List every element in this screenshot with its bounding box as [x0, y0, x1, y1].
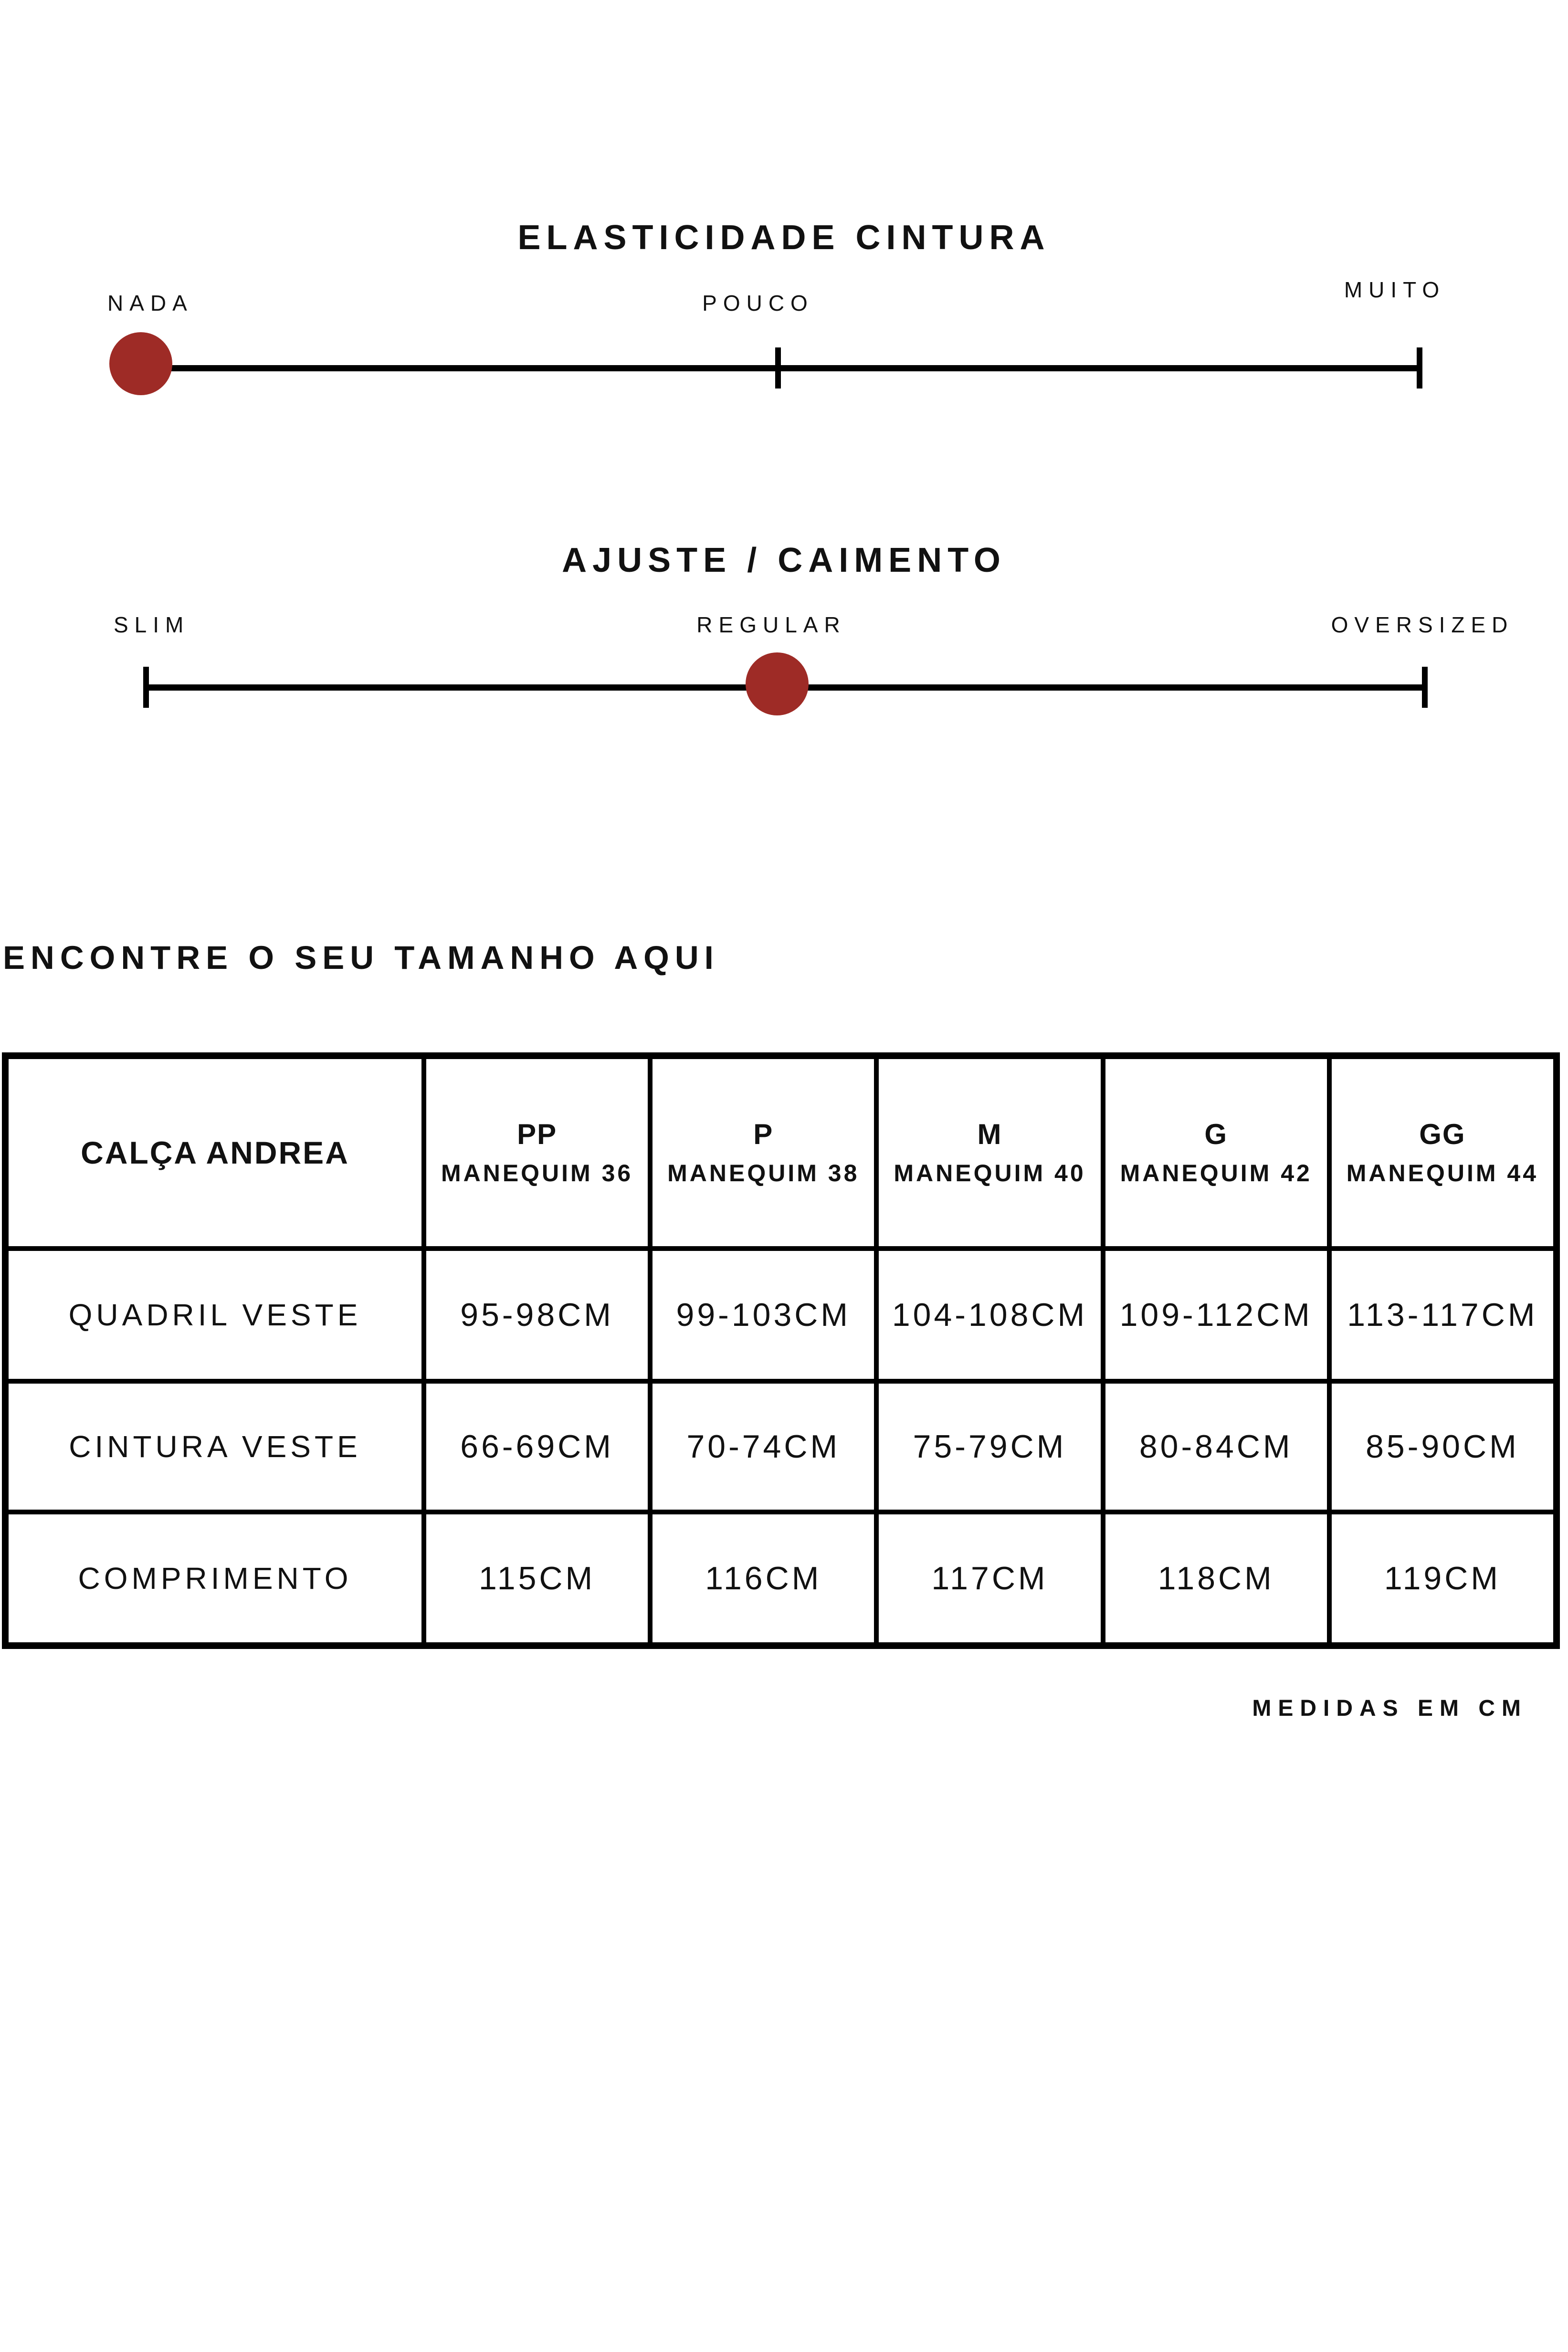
measurement-value: 104-108CM: [892, 1299, 1087, 1331]
slider-label-pouco: POUCO: [663, 292, 853, 314]
row-label-cell: COMPRIMENTO: [9, 1514, 421, 1642]
table-cell: 95-98CM: [426, 1251, 648, 1379]
table-cell: 75-79CM: [879, 1384, 1100, 1510]
size-code: P: [753, 1120, 773, 1149]
measurement-value: 117CM: [931, 1562, 1048, 1595]
measurement-value: 66-69CM: [460, 1430, 614, 1463]
measurement-value: 70-74CM: [686, 1430, 840, 1463]
table-cell: 117CM: [879, 1514, 1100, 1642]
table-cell: 115CM: [426, 1514, 648, 1642]
measurement-value: 85-90CM: [1366, 1430, 1519, 1463]
slider-dot-indicator: [746, 652, 809, 715]
size-column-header-p: P MANEQUIM 38: [652, 1059, 874, 1246]
table-cell: 70-74CM: [652, 1384, 874, 1510]
table-cell: 118CM: [1105, 1514, 1327, 1642]
mannequin-label: MANEQUIM 38: [667, 1161, 859, 1185]
measurement-value: 95-98CM: [460, 1299, 614, 1331]
measurement-value: 113-117CM: [1347, 1299, 1537, 1331]
size-column-header-pp: PP MANEQUIM 36: [426, 1059, 648, 1246]
slider-title: AJUSTE / CAIMENTO: [0, 543, 1568, 577]
mannequin-label: MANEQUIM 36: [441, 1161, 633, 1185]
measurement-value: 118CM: [1158, 1562, 1274, 1595]
row-label-cell: QUADRIL VESTE: [9, 1251, 421, 1379]
slider-title: ELASTICIDADE CINTURA: [0, 220, 1568, 255]
size-table: CALÇA ANDREA PP MANEQUIM 36 P MANEQUIM 3…: [2, 1052, 1560, 1649]
measurement-value: 115CM: [479, 1562, 595, 1595]
table-cell: 80-84CM: [1105, 1384, 1327, 1510]
table-cell: 113-117CM: [1332, 1251, 1553, 1379]
size-code: G: [1204, 1120, 1228, 1149]
slider-tick-start: [143, 667, 149, 708]
table-cell: 99-103CM: [652, 1251, 874, 1379]
size-guide-heading: ENCONTRE O SEU TAMANHO AQUI: [3, 941, 719, 974]
measurement-value: 116CM: [705, 1562, 821, 1595]
measurement-value: 119CM: [1384, 1562, 1501, 1595]
measurement-value: 109-112CM: [1120, 1299, 1313, 1331]
table-cell: 85-90CM: [1332, 1384, 1553, 1510]
measurement-value: 80-84CM: [1139, 1430, 1293, 1463]
row-label-cell: CINTURA VESTE: [9, 1384, 421, 1510]
size-code: GG: [1419, 1120, 1465, 1149]
table-cell: 66-69CM: [426, 1384, 648, 1510]
slider-tick-end: [1417, 347, 1422, 388]
table-cell: 119CM: [1332, 1514, 1553, 1642]
slider-tick-mid: [775, 347, 781, 388]
table-cell: 109-112CM: [1105, 1251, 1327, 1379]
table-cell: 116CM: [652, 1514, 874, 1642]
size-column-header-gg: GG MANEQUIM 44: [1332, 1059, 1553, 1246]
size-column-header-m: M MANEQUIM 40: [879, 1059, 1100, 1246]
size-guide-page: { "sliders": [ { "title": "ELASTICIDADE …: [0, 0, 1568, 2352]
table-cell: 104-108CM: [879, 1251, 1100, 1379]
product-name: CALÇA ANDREA: [81, 1137, 349, 1168]
mannequin-label: MANEQUIM 44: [1347, 1161, 1538, 1185]
row-label: COMPRIMENTO: [78, 1563, 352, 1594]
row-label: CINTURA VESTE: [69, 1431, 361, 1462]
size-code: M: [978, 1120, 1002, 1149]
measurements-unit-note: MEDIDAS EM CM: [1252, 1697, 1527, 1720]
slider-label-regular: REGULAR: [676, 614, 867, 636]
slider-label-slim: SLIM: [114, 614, 189, 636]
size-column-header-g: G MANEQUIM 42: [1105, 1059, 1327, 1246]
row-label: QUADRIL VESTE: [69, 1300, 362, 1330]
slider-tick-end: [1422, 667, 1428, 708]
slider-label-nada: NADA: [107, 292, 193, 314]
mannequin-label: MANEQUIM 42: [1120, 1161, 1312, 1185]
product-name-cell: CALÇA ANDREA: [9, 1059, 421, 1246]
slider-dot-indicator: [109, 332, 172, 395]
slider-label-oversized: OVERSIZED: [1327, 614, 1518, 636]
size-code: PP: [517, 1120, 557, 1149]
slider-label-muito: MUITO: [1299, 279, 1490, 301]
measurement-value: 75-79CM: [913, 1430, 1067, 1463]
mannequin-label: MANEQUIM 40: [894, 1161, 1085, 1185]
measurement-value: 99-103CM: [676, 1299, 851, 1331]
